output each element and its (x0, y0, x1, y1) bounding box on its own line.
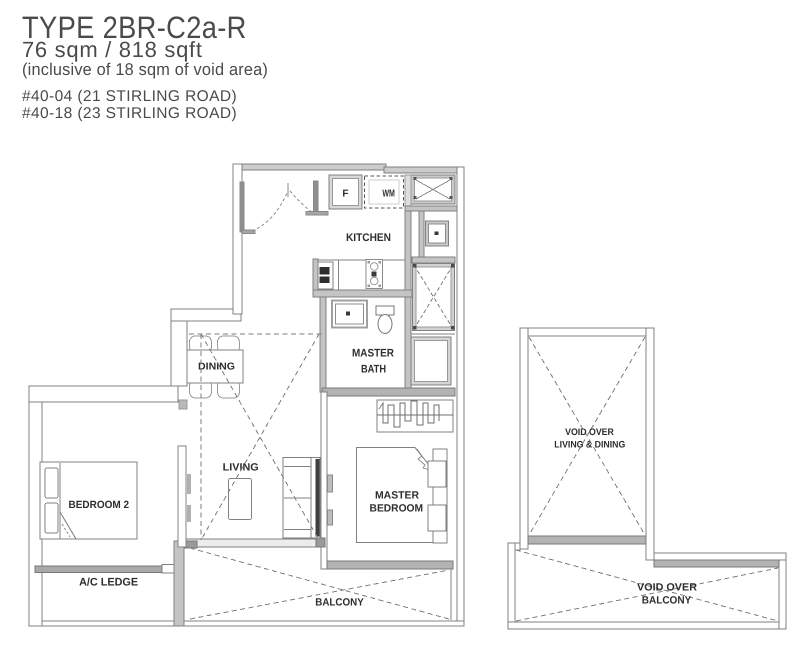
svg-text:A/C LEDGE: A/C LEDGE (79, 577, 138, 589)
svg-text:LIVING & DINING: LIVING & DINING (554, 440, 625, 451)
svg-text:LIVING: LIVING (223, 462, 259, 474)
svg-text:MASTER: MASTER (352, 348, 394, 360)
svg-text:VOID OVER: VOID OVER (565, 427, 614, 438)
svg-text:BATH: BATH (361, 364, 386, 376)
svg-text:F: F (342, 189, 348, 200)
svg-text:BEDROOM 2: BEDROOM 2 (69, 499, 130, 511)
svg-text:BEDROOM: BEDROOM (370, 502, 424, 514)
svg-text:WM: WM (382, 189, 395, 200)
svg-text:KITCHEN: KITCHEN (346, 232, 391, 244)
svg-text:BALCONY: BALCONY (315, 597, 364, 609)
svg-text:MASTER: MASTER (375, 489, 419, 501)
svg-text:BALCONY: BALCONY (642, 595, 692, 607)
svg-text:VOID OVER: VOID OVER (637, 582, 697, 594)
svg-text:DINING: DINING (198, 361, 235, 372)
